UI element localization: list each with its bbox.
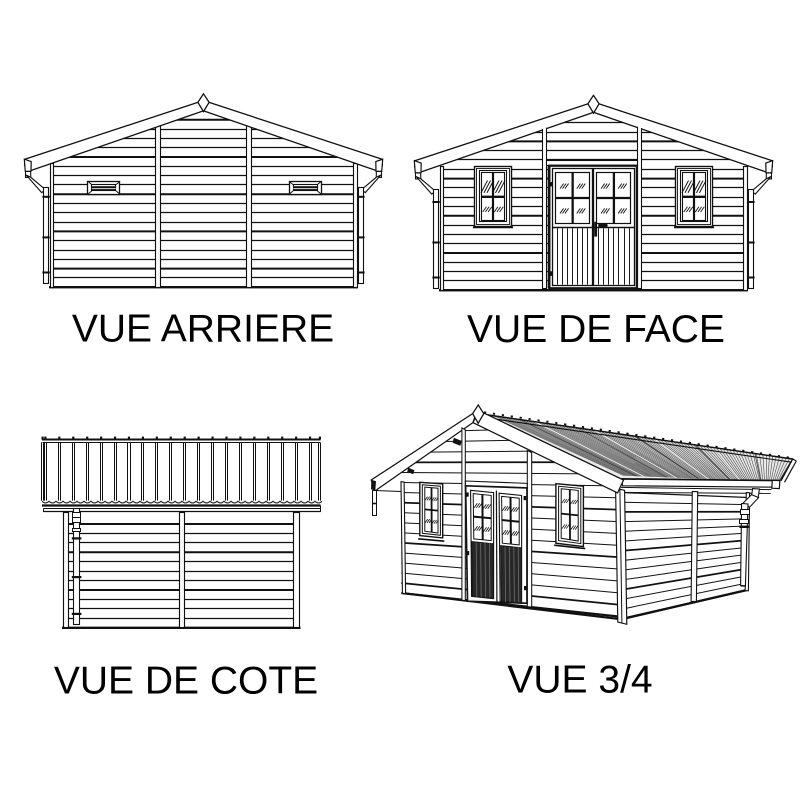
svg-text:VUE DE COTE: VUE DE COTE	[54, 660, 318, 703]
svg-text:VUE ARRIERE: VUE ARRIERE	[72, 308, 334, 351]
svg-text:VUE 3/4: VUE 3/4	[507, 659, 652, 702]
svg-text:VUE DE FACE: VUE DE FACE	[467, 308, 725, 351]
